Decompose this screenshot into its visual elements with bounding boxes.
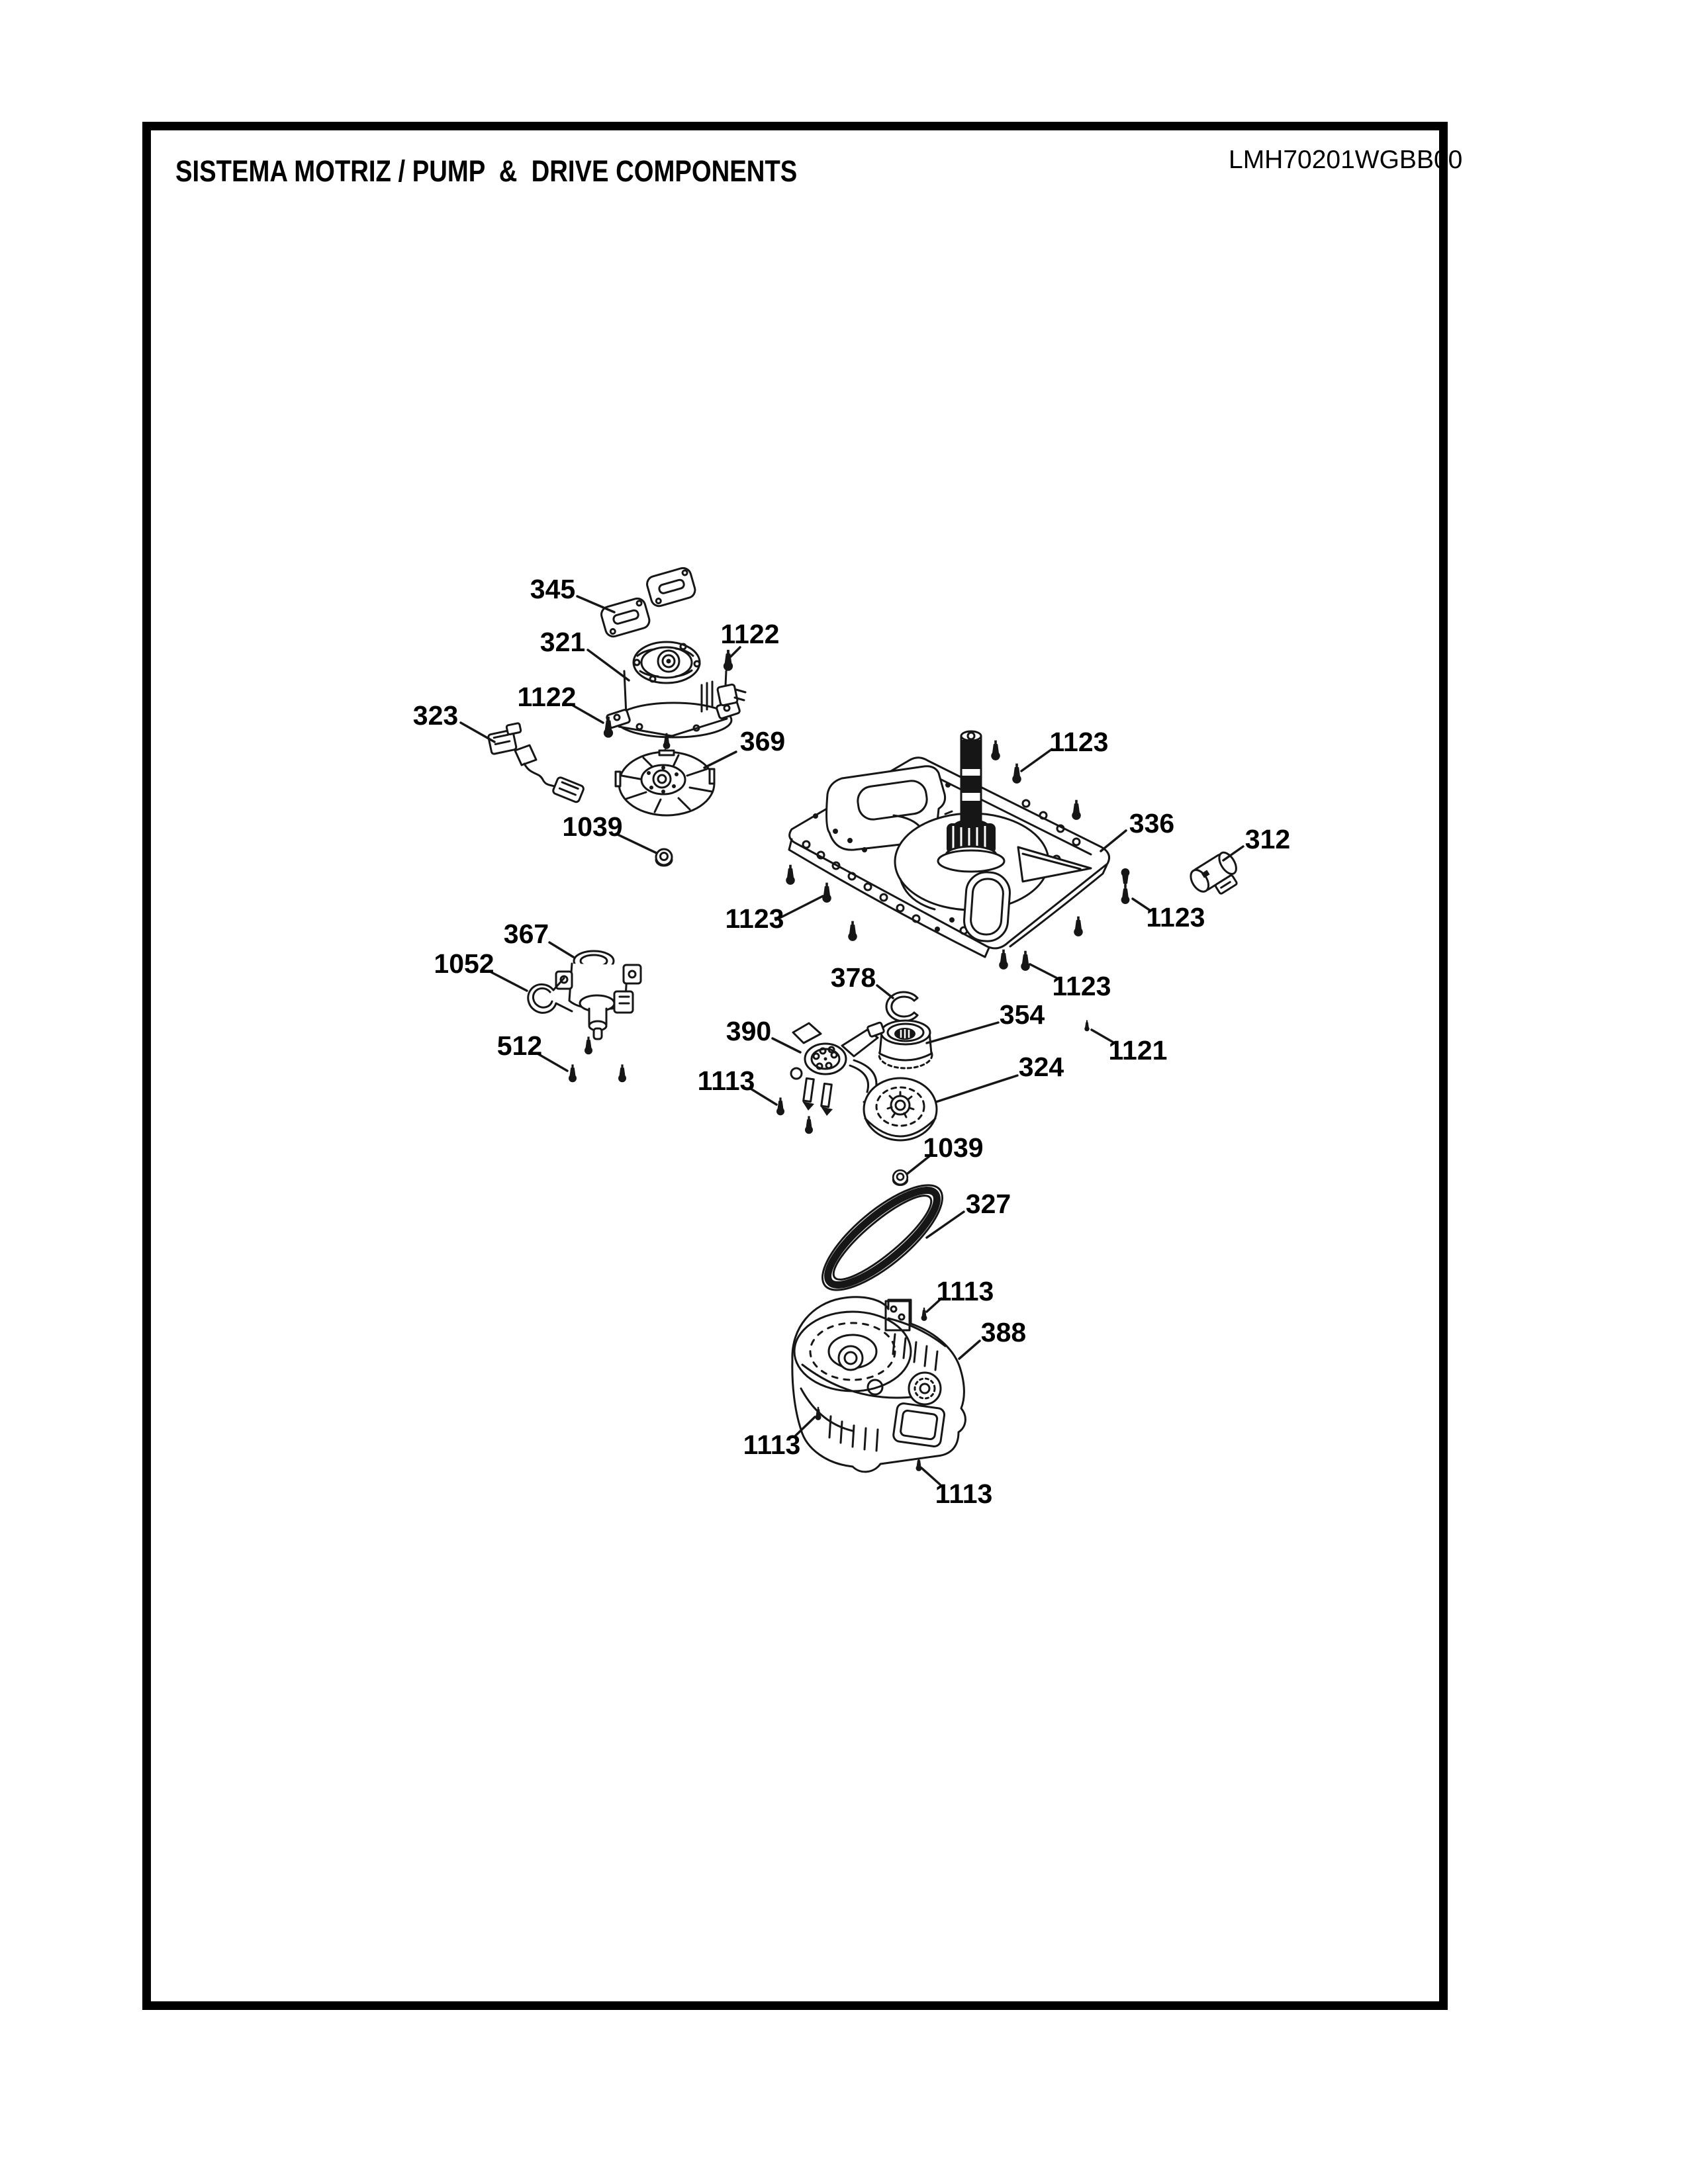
callout-345: 345: [530, 574, 575, 604]
callout-1113-b: 1113: [937, 1276, 994, 1306]
callout-1039-a: 1039: [562, 811, 622, 842]
callout-1123-a: 1123: [1050, 727, 1109, 757]
screw-icon: [1084, 1021, 1090, 1032]
screw-icon: [1121, 886, 1130, 904]
screw-icon: [724, 650, 733, 671]
callout-1122-a: 1122: [721, 619, 780, 649]
callout-512: 512: [497, 1030, 542, 1061]
callout-1052: 1052: [434, 948, 494, 979]
callout-1039-b: 1039: [923, 1132, 983, 1163]
screw-icon: [786, 865, 795, 885]
screw-icon: [1074, 917, 1083, 936]
callout-321: 321: [540, 627, 585, 657]
screw-icon: [1072, 800, 1081, 820]
callout-1121: 1121: [1109, 1035, 1168, 1066]
mounting-plate-drawing: [600, 567, 697, 639]
screw-icon: [618, 1064, 626, 1082]
callout-1113-a: 1113: [698, 1066, 755, 1096]
callout-390: 390: [726, 1016, 771, 1046]
callout-1123-b: 1123: [1147, 902, 1205, 933]
callout-1113-d: 1113: [935, 1479, 993, 1509]
nut-icon: [893, 1170, 908, 1185]
screw-icon: [569, 1064, 577, 1082]
callout-1113-c: 1113: [743, 1430, 801, 1460]
screw-icon: [848, 921, 857, 941]
callout-336: 336: [1129, 808, 1174, 839]
screw-icon: [999, 950, 1008, 970]
screw-icon: [805, 1116, 813, 1134]
screw-icon: [991, 741, 1000, 760]
nut-icon: [656, 849, 672, 866]
callout-367: 367: [504, 919, 549, 949]
screw-icon: [1012, 764, 1021, 784]
valve-drawing: [556, 951, 641, 1039]
exploded-parts-diagram: 345 321 1122 1122 323 369 1039 367 1052 …: [0, 0, 1688, 2184]
coupling-drawing: [1187, 850, 1245, 904]
callout-1123-c: 1123: [726, 903, 784, 934]
callout-1123-d: 1123: [1053, 971, 1111, 1001]
callout-323: 323: [413, 700, 458, 731]
callout-369: 369: [740, 726, 785, 756]
callout-327: 327: [966, 1189, 1011, 1219]
pump-housing-drawing: [792, 1297, 966, 1472]
wire-harness-drawing: [487, 723, 584, 803]
screw-icon: [585, 1036, 592, 1054]
callout-312: 312: [1245, 824, 1290, 854]
belt-drawing: [808, 1169, 957, 1306]
callout-1122-b: 1122: [518, 682, 577, 712]
screw-icon: [822, 883, 831, 903]
fan-drawing: [616, 750, 714, 815]
screw-icon: [921, 1308, 927, 1321]
callout-354: 354: [1000, 999, 1045, 1030]
screw-icon: [776, 1097, 784, 1115]
callout-378: 378: [831, 962, 876, 993]
screw-icon: [1021, 951, 1030, 971]
callout-324: 324: [1019, 1052, 1064, 1082]
callout-388: 388: [981, 1317, 1026, 1347]
motor-drawing: [606, 642, 745, 737]
gear-drawing: [879, 1021, 932, 1068]
pulley-drawing: [864, 1078, 937, 1140]
screw-icon: [1121, 868, 1130, 887]
